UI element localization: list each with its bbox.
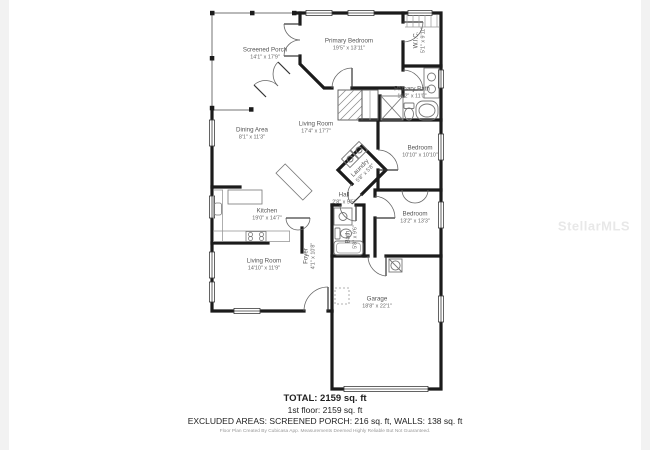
room-name: W.I.C. <box>412 27 420 53</box>
room-label-primary-bath: Primary Bath 10'2" x 11'0" <box>394 85 430 100</box>
room-label-hall: Hall 2'8" x 5'5" <box>332 191 356 206</box>
floor-plan: Screened Porch 14'1" x 17'9" Primary Bed… <box>0 0 650 450</box>
room-name: Screened Porch <box>243 46 287 54</box>
total-area: TOTAL: 2159 sq. ft <box>0 393 650 404</box>
room-name: Kitchen <box>252 207 282 215</box>
room-label-dining-area: Dining Area 8'1" x 11'3" <box>236 126 268 141</box>
room-dims: 14'10" x 11'9" <box>247 266 281 273</box>
room-name: Garage <box>362 295 392 303</box>
room-label-bedroom-1: Bedroom 10'10" x 10'10" <box>402 144 438 159</box>
room-name: Dining Area <box>236 126 268 134</box>
room-name: Foyer <box>302 243 310 270</box>
room-dims: 10'10" x 10'10" <box>402 153 438 160</box>
room-name: Primary Bath <box>394 85 430 93</box>
room-name: Hall <box>332 191 356 199</box>
room-label-kitchen: Kitchen 19'0" x 14'7" <box>252 207 282 222</box>
wic-shelves <box>405 15 439 27</box>
room-dims: 18'8" x 22'1" <box>362 304 392 311</box>
room-name: Bedroom <box>402 144 438 152</box>
room-label-bath: Bath 5'8" x 9'6" <box>344 225 359 249</box>
excluded-areas: EXCLUDED AREAS: SCREENED PORCH: 216 sq. … <box>0 416 650 426</box>
room-dims: 2'8" x 5'5" <box>332 200 356 207</box>
room-label-screened-porch: Screened Porch 14'1" x 17'9" <box>243 46 287 61</box>
floorplan-drawing <box>0 0 650 450</box>
garage-closet-dashed <box>335 288 349 304</box>
room-name: Living Room <box>299 120 333 128</box>
room-label-primary-bedroom: Primary Bedroom 19'5" x 13'11" <box>325 37 373 52</box>
summary: TOTAL: 2159 sq. ft 1st floor: 2159 sq. f… <box>0 393 650 434</box>
disclaimer: Floor Plan Created By Cubicasa App. Meas… <box>0 429 650 434</box>
room-dims: 19'5" x 13'11" <box>325 46 373 53</box>
room-name: Primary Bedroom <box>325 37 373 45</box>
room-label-wic: W.I.C. 5'1" x 9'11" <box>412 27 427 53</box>
water-heater <box>389 259 402 272</box>
room-label-bedroom-2: Bedroom 13'2" x 13'3" <box>400 210 430 225</box>
stairs-hatch <box>338 90 362 120</box>
room-dims: 4'1" x 10'8" <box>311 243 318 270</box>
room-dims: 13'2" x 13'3" <box>400 219 430 226</box>
room-dims: 5'1" x 9'11" <box>421 27 428 53</box>
room-label-garage: Garage 18'8" x 22'1" <box>362 295 392 310</box>
room-dims: 14'1" x 17'9" <box>243 55 287 62</box>
room-dims: 5'8" x 9'6" <box>353 225 360 249</box>
watermark: StellarMLS <box>558 219 630 234</box>
room-dims: 10'2" x 11'0" <box>394 94 430 101</box>
room-name: Living Room <box>247 257 281 265</box>
room-label-foyer: Foyer 4'1" x 10'8" <box>302 243 317 270</box>
room-dims: 17'4" x 17'7" <box>299 129 333 136</box>
room-label-living-room: Living Room 17'4" x 17'7" <box>299 120 333 135</box>
room-name: Bath <box>344 225 352 249</box>
room-name: Bedroom <box>400 210 430 218</box>
first-floor-area: 1st floor: 2159 sq. ft <box>0 405 650 415</box>
room-dims: 8'1" x 11'3" <box>236 135 268 142</box>
walls <box>212 13 441 389</box>
room-label-living-room-2: Living Room 14'10" x 11'9" <box>247 257 281 272</box>
hall-closet <box>362 90 378 120</box>
room-dims: 19'0" x 14'7" <box>252 216 282 223</box>
